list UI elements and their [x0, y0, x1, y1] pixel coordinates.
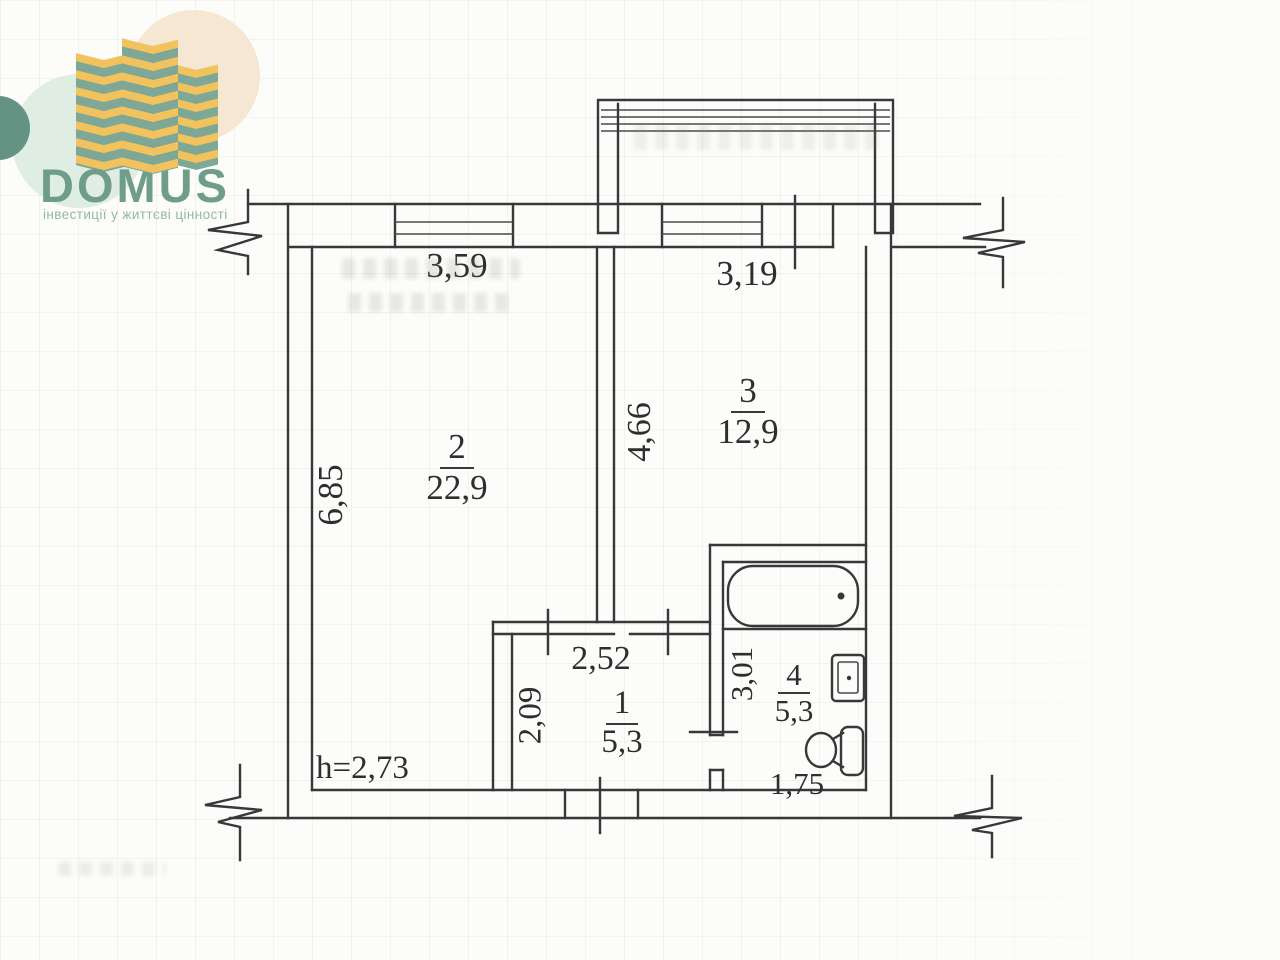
- break-mark-icon: [205, 765, 262, 860]
- break-mark-icon: [208, 190, 262, 274]
- dimension-room3-height: 4,66: [621, 372, 659, 492]
- scanned-floor-plan-page: DOMUS інвестиції у життєві цінності: [0, 0, 1280, 960]
- dimension-hall-height: 2,09: [513, 656, 550, 776]
- window-icon: [395, 204, 513, 247]
- break-mark-icon: [954, 776, 1022, 857]
- room-area: 22,9: [426, 468, 487, 507]
- scan-artifact: [58, 862, 166, 876]
- entrance-door-opening: [565, 778, 638, 833]
- room-area: 5,3: [775, 693, 814, 728]
- scan-artifact: [348, 293, 508, 312]
- dimension-hall-width: 2,52: [541, 640, 661, 678]
- dimension-bath-width: 1,75: [737, 766, 857, 802]
- balcony-outline: [598, 100, 893, 233]
- room-number: 1: [606, 686, 639, 725]
- ceiling-height-note: h=2,73: [316, 750, 409, 787]
- dimension-room2-height: 6,85: [311, 435, 351, 555]
- room-area: 12,9: [717, 412, 778, 451]
- scan-artifact: [634, 124, 880, 150]
- room-number: 2: [440, 428, 474, 469]
- scan-artifact: [342, 258, 520, 279]
- window-icon: [662, 204, 762, 247]
- break-mark-icon: [963, 198, 1025, 287]
- room-number: 3: [731, 372, 765, 413]
- room-number: 4: [778, 658, 810, 694]
- room-label-4: 4 5,3: [740, 658, 848, 728]
- building-tower-icon: [122, 46, 178, 174]
- room-label-2: 2 22,9: [397, 428, 517, 507]
- room-label-3: 3 12,9: [688, 372, 808, 451]
- dimension-room3-width: 3,19: [687, 254, 807, 294]
- room-area: 5,3: [601, 724, 642, 760]
- room-label-1: 1 5,3: [562, 686, 682, 760]
